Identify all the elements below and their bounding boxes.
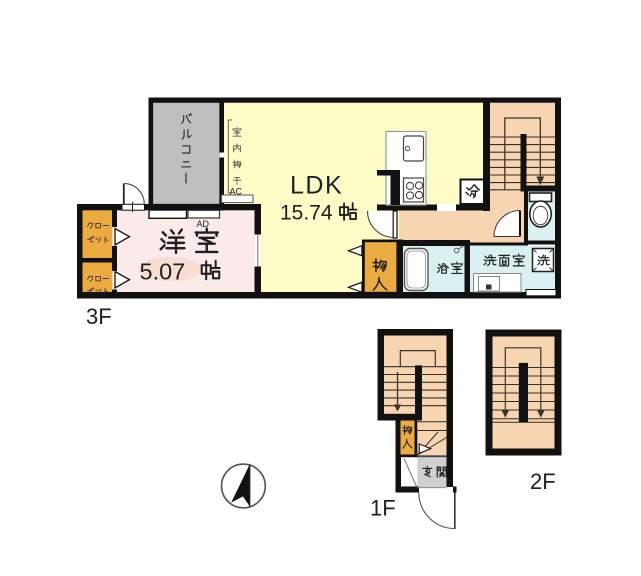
- svg-text:1F: 1F: [370, 496, 396, 521]
- svg-text:5.07: 5.07: [140, 259, 186, 285]
- svg-text:AC: AC: [230, 187, 243, 197]
- svg-text:15.74: 15.74: [280, 202, 333, 225]
- svg-text:LDK: LDK: [290, 172, 343, 200]
- svg-text:2F: 2F: [530, 469, 556, 494]
- svg-text:AD: AD: [197, 219, 210, 229]
- svg-text:3F: 3F: [86, 304, 112, 329]
